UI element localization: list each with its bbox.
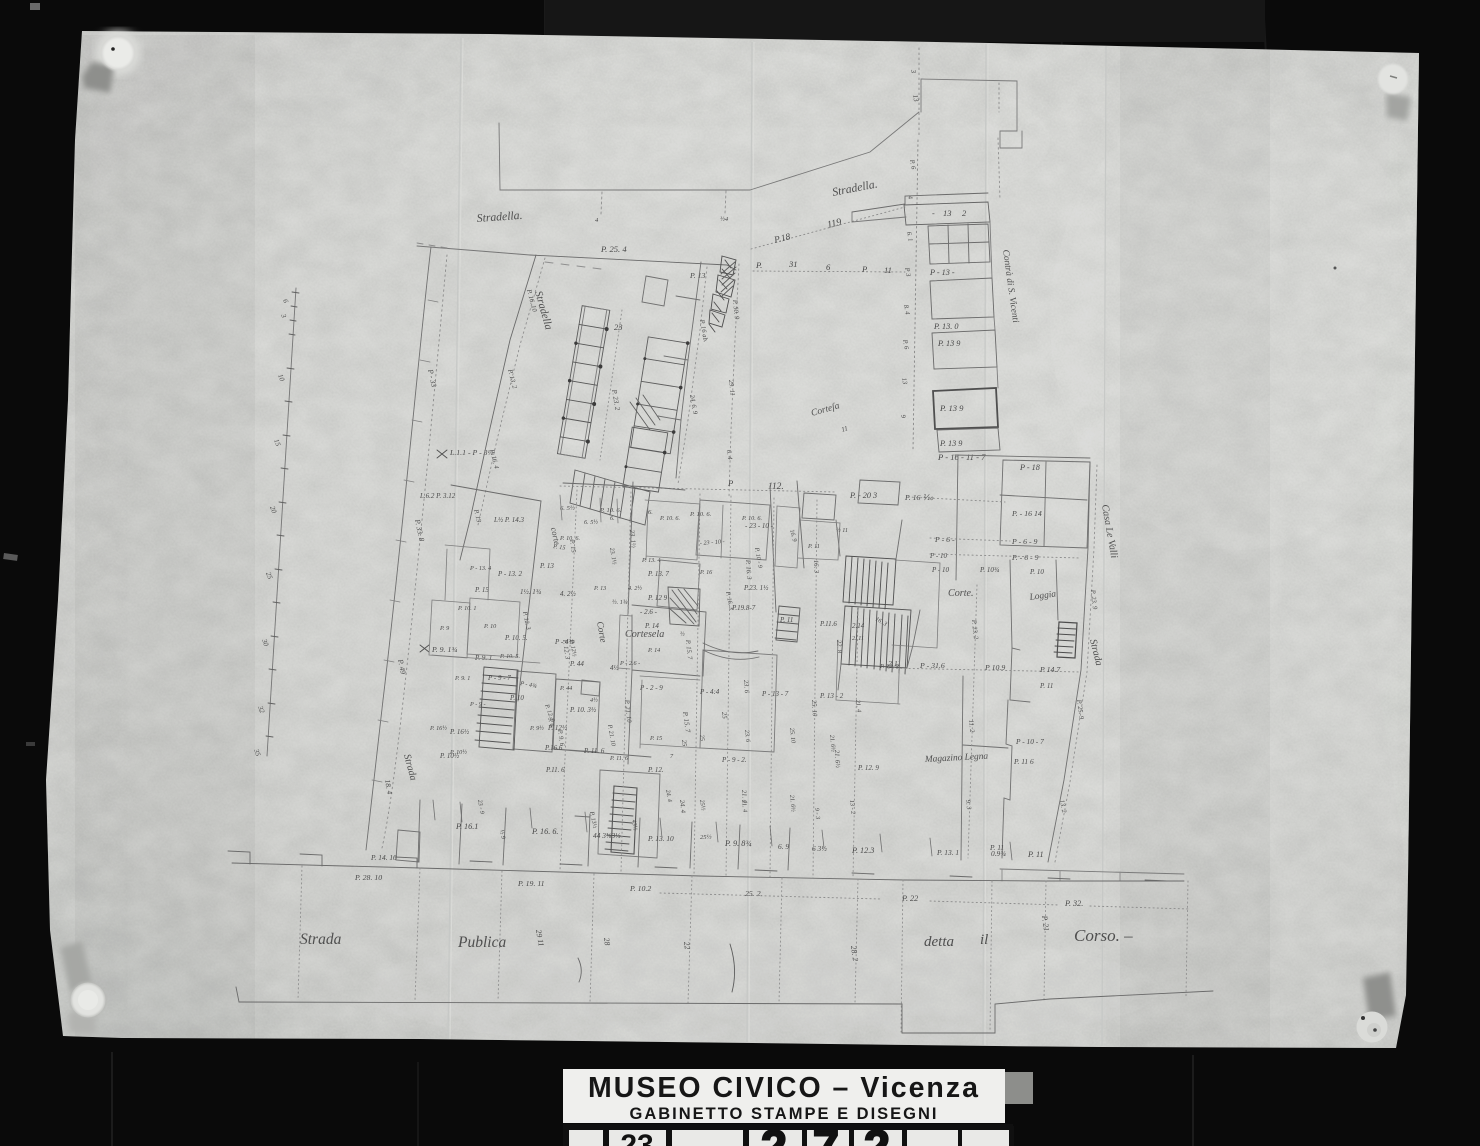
svg-text:23. 6: 23. 6 — [742, 680, 750, 694]
svg-text:P. 9. 8¾: P. 9. 8¾ — [724, 839, 751, 848]
svg-text:½: ½ — [680, 631, 685, 638]
svg-text:½ 11: ½ 11 — [836, 527, 848, 534]
svg-text:P.11.6: P.11.6 — [819, 620, 837, 628]
svg-text:il: il — [980, 932, 988, 948]
svg-text:P - 9 - 2.: P - 9 - 2. — [721, 756, 747, 764]
svg-text:P. 10. 5.: P. 10. 5. — [499, 653, 520, 660]
svg-text:P. 9½: P. 9½ — [529, 725, 544, 732]
svg-text:P. 19. 11: P. 19. 11 — [517, 879, 545, 888]
svg-text:P. 13 9: P. 13 9 — [939, 439, 962, 448]
svg-text:6 3½: 6 3½ — [812, 844, 827, 853]
svg-text:P. 13. 10: P. 13. 10 — [647, 834, 674, 843]
svg-text:P. 16½: P. 16½ — [449, 728, 470, 736]
svg-text:0.9¾: 0.9¾ — [991, 849, 1006, 858]
svg-text:6.: 6. — [610, 515, 615, 522]
svg-text:P - 6 - 9: P - 6 - 9 — [1011, 537, 1038, 546]
svg-text:2: 2 — [761, 1120, 787, 1146]
svg-text:P. - 16 14: P. - 16 14 — [1011, 509, 1042, 518]
svg-text:P. 10. 6.: P. 10. 6. — [659, 515, 680, 522]
svg-text:6: 6 — [826, 262, 831, 272]
svg-text:P. 13. 7: P. 13. 7 — [647, 570, 669, 578]
svg-text:P. 13 9: P. 13 9 — [937, 339, 960, 348]
svg-text:P. - 6 - 9: P. - 6 - 9 — [1011, 553, 1039, 562]
svg-text:P. 32.: P. 32. — [1064, 899, 1083, 908]
svg-text:25. 10: 25. 10 — [810, 700, 818, 718]
svg-text:L.6.2 P. 3.12: L.6.2 P. 3.12 — [419, 492, 456, 500]
svg-text:2: 2 — [864, 1120, 890, 1146]
svg-text:P. 11: P. 11 — [779, 616, 793, 624]
svg-text:P. 11. 6: P. 11. 6 — [583, 747, 605, 755]
svg-text:P - 6 -: P - 6 - — [934, 535, 955, 544]
svg-text:24. 4: 24. 4 — [678, 799, 686, 814]
svg-text:P - 10 - 7: P - 10 - 7 — [1015, 737, 1044, 746]
svg-text:P. 10. 3½: P. 10. 3½ — [569, 706, 597, 714]
svg-text:P.11. 6: P.11. 6 — [545, 766, 565, 774]
svg-text:P. 14: P. 14 — [644, 622, 659, 630]
svg-text:- 2.6 -: - 2.6 - — [640, 608, 658, 616]
svg-text:Strada: Strada — [300, 931, 342, 948]
svg-text:22: 22 — [682, 941, 692, 950]
svg-text:P. 44: P. 44 — [569, 660, 584, 668]
svg-text:P - 9 -: P - 9 - — [469, 701, 486, 708]
svg-text:P. 11: P. 11 — [1027, 850, 1044, 859]
svg-text:4½: 4½ — [590, 697, 598, 704]
svg-text:6. 5½: 6. 5½ — [584, 519, 598, 526]
svg-text:P. 13: P. 13 — [539, 562, 554, 570]
svg-text:P. 11 6: P. 11 6 — [1013, 757, 1034, 766]
svg-text:P. 9. 1¾: P. 9. 1¾ — [431, 645, 457, 654]
svg-text:P - 4:4: P - 4:4 — [699, 688, 720, 696]
svg-text:31: 31 — [788, 259, 798, 269]
svg-text:P - 13. 2: P - 13. 2 — [497, 570, 522, 578]
svg-text:P 14.7: P 14.7 — [1039, 665, 1061, 674]
svg-text:1½. 1¾: 1½. 1¾ — [520, 588, 542, 596]
svg-text:P. 10. 1: P. 10. 1 — [457, 605, 476, 612]
svg-text:P. 12 9: P. 12 9 — [647, 594, 668, 602]
svg-text:P. 16½: P. 16½ — [429, 725, 447, 732]
svg-text:9. 3: 9. 3 — [964, 799, 972, 810]
svg-text:MUSEO CIVICO – Vicenza: MUSEO CIVICO – Vicenza — [588, 1072, 980, 1104]
svg-text:P.16.6: P.16.6 — [544, 744, 563, 752]
svg-text:P - 2.6 -: P - 2.6 - — [619, 660, 640, 667]
svg-text:P. 22: P. 22 — [901, 894, 918, 903]
svg-text:P. 12. 9: P. 12. 9 — [857, 764, 879, 772]
svg-text:- 23 - 10 -: - 23 - 10 - — [745, 522, 774, 530]
svg-text:2. 11: 2. 11 — [852, 635, 864, 642]
svg-text:P. 11. 6: P. 11. 6 — [609, 755, 629, 762]
svg-text:25. 2.: 25. 2. — [745, 889, 763, 898]
svg-text:11. 2: 11. 2 — [967, 719, 975, 733]
svg-text:detta: detta — [924, 934, 954, 950]
svg-text:P. 10: P. 10 — [1029, 568, 1044, 576]
svg-text:6. 4: 6. 4 — [725, 449, 733, 460]
svg-text:P: P — [861, 264, 868, 274]
svg-text:Publica: Publica — [457, 934, 506, 951]
svg-text:P. 12.: P. 12. — [647, 766, 664, 774]
svg-text:23: 23 — [614, 322, 623, 332]
svg-text:P. 10.2: P. 10.2 — [629, 884, 651, 893]
svg-text:P. 15: P. 15 — [649, 735, 662, 742]
svg-text:P. 16 ⅒: P. 16 ⅒ — [904, 493, 934, 502]
svg-text:L½ P. 14.3: L½ P. 14.3 — [493, 516, 525, 524]
svg-text:Cortesela: Cortesela — [625, 629, 664, 640]
svg-text:P - 13 -: P - 13 - — [929, 268, 955, 277]
svg-text:6.: 6. — [648, 509, 653, 516]
svg-text:Corte.: Corte. — [948, 588, 974, 599]
svg-text:P - 13. 4: P - 13. 4 — [469, 565, 491, 572]
svg-text:P. 10. 6.: P. 10. 6. — [741, 515, 762, 522]
svg-text:P. 9: P. 9 — [439, 625, 449, 632]
svg-text:11: 11 — [884, 265, 892, 275]
svg-text:P. 9. 1: P. 9. 1 — [454, 675, 470, 682]
svg-text:22. 8: 22. 8 — [835, 640, 843, 654]
svg-text:Corso. –: Corso. – — [1074, 926, 1133, 945]
svg-text:25: 25 — [720, 711, 729, 719]
svg-text:P. 13. 1: P. 13. 1 — [936, 848, 959, 857]
svg-text:P. 28. 10: P. 28. 10 — [354, 873, 382, 882]
svg-text:P. 13. 0: P. 13. 0 — [933, 322, 958, 331]
svg-text:44 3⅛3½: 44 3⅛3½ — [593, 831, 621, 840]
svg-text:P. 13 9: P. 13 9 — [939, 403, 964, 413]
svg-text:P. 11: P. 11 — [1039, 682, 1053, 690]
svg-text:P. 10½: P. 10½ — [449, 749, 467, 756]
svg-text:P. 10: P. 10 — [483, 623, 497, 630]
svg-text:P. 12.3: P. 12.3 — [851, 846, 874, 855]
svg-text:P - 10: P - 10 — [929, 552, 947, 560]
svg-text:9 - 3: 9 - 3 — [813, 807, 821, 819]
svg-text:P. 10. 6.: P. 10. 6. — [559, 535, 580, 542]
svg-text:P - 9 - 7: P - 9 - 7 — [487, 674, 511, 682]
svg-text:P. 10: P. 10 — [509, 694, 524, 702]
svg-text:28: 28 — [602, 937, 612, 946]
svg-text:P. 10. 5.: P. 10. 5. — [504, 634, 528, 642]
svg-text:21. 4: 21. 4 — [740, 799, 748, 812]
svg-text:P. 16: P. 16 — [699, 569, 713, 576]
svg-text:P. 10. 6.: P. 10. 6. — [689, 511, 712, 518]
svg-text:P. 13 - 2: P. 13 - 2 — [819, 692, 844, 700]
svg-text:P - 13 - 7: P - 13 - 7 — [761, 690, 789, 698]
svg-text:P. 14. 10: P. 14. 10 — [370, 853, 397, 862]
svg-text:23: 23 — [620, 1129, 653, 1146]
svg-text:P. 11: P. 11 — [807, 543, 820, 550]
svg-text:4. 2½: 4. 2½ — [560, 590, 577, 598]
svg-text:6. 5½: 6. 5½ — [560, 505, 575, 512]
svg-text:7: 7 — [813, 1120, 839, 1146]
svg-text:25½: 25½ — [700, 834, 712, 841]
svg-text:2.14: 2.14 — [852, 622, 865, 630]
svg-text:½4: ½4 — [720, 216, 729, 223]
svg-text:P.: P. — [755, 260, 762, 270]
svg-text:6. 9: 6. 9 — [778, 842, 789, 851]
svg-text:-: - — [932, 209, 935, 218]
svg-text:21. 4: 21. 4 — [854, 699, 862, 712]
svg-text:P - 31.6: P - 31.6 — [919, 661, 945, 670]
svg-text:21. 6½: 21. 6½ — [833, 750, 841, 769]
svg-text:P. 16. 6.: P. 16. 6. — [531, 827, 558, 836]
svg-text:P - 2 - 9: P - 2 - 9 — [639, 684, 663, 692]
svg-text:P. 13: P. 13 — [593, 585, 606, 592]
svg-text:P - 18: P - 18 — [1019, 463, 1040, 472]
svg-text:P. 16. 3: P. 16. 3 — [744, 559, 752, 581]
svg-text:25: 25 — [698, 734, 706, 741]
svg-text:P. 13. 4: P. 13. 4 — [641, 557, 660, 564]
svg-text:P: P — [727, 478, 734, 488]
svg-text:½. 1¾: ½. 1¾ — [612, 599, 628, 606]
svg-text:P. 12. 9: P. 12. 9 — [879, 663, 898, 670]
svg-text:13: 13 — [943, 208, 952, 218]
svg-text:P. 16.1: P. 16.1 — [455, 822, 478, 831]
svg-text:P. 44: P. 44 — [559, 685, 572, 692]
svg-text:P. 15: P. 15 — [474, 586, 489, 594]
svg-text:P. 14: P. 14 — [647, 647, 660, 654]
svg-text:23. 6: 23. 6 — [743, 729, 751, 743]
svg-text:P. 13: P. 13 — [689, 271, 706, 280]
svg-text:P 10.9: P 10.9 — [984, 663, 1005, 672]
svg-text:16. 3: 16. 3 — [812, 560, 820, 574]
svg-text:P.23. 1½: P.23. 1½ — [743, 584, 769, 592]
svg-text:P. 25. 4: P. 25. 4 — [600, 244, 627, 254]
svg-text:P. 10¾: P. 10¾ — [979, 566, 1000, 574]
svg-text:P - 16 - 11 - 7: P - 16 - 11 - 7 — [937, 452, 986, 462]
svg-text:P. 10. 6.: P. 10. 6. — [599, 507, 622, 514]
svg-text:L.1.1 - P - 3½: L.1.1 - P - 3½ — [449, 448, 494, 457]
svg-text:4. 2½: 4. 2½ — [628, 585, 642, 592]
svg-text:P. - 20 3: P. - 20 3 — [849, 491, 877, 500]
